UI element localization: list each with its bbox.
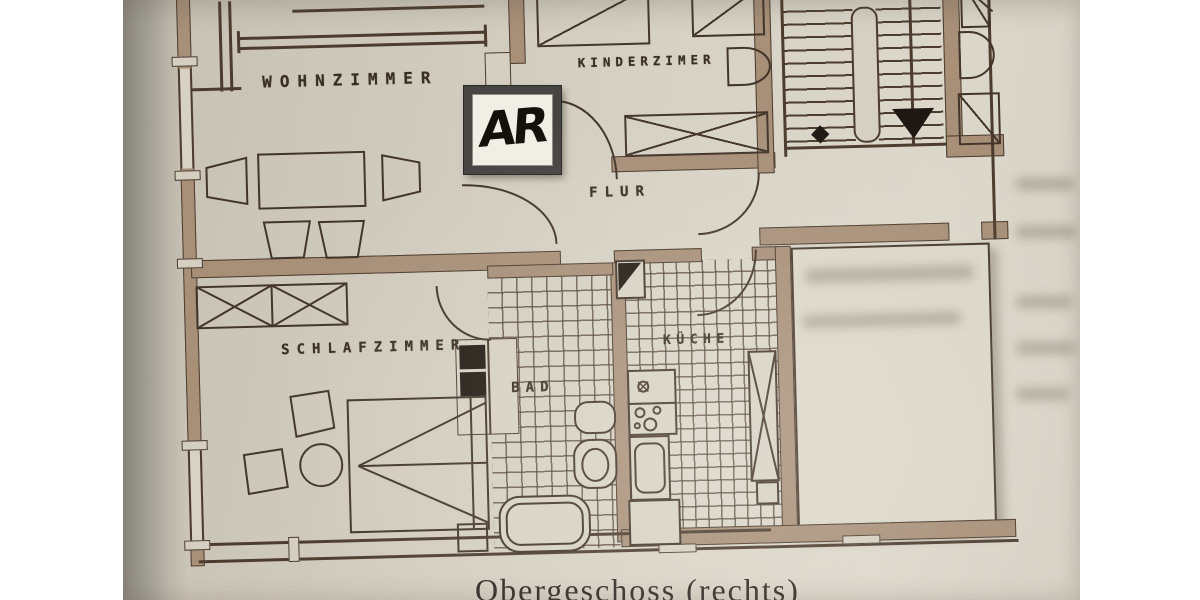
ar-annotation-label: AR bbox=[478, 101, 548, 159]
ink-bleedthrough bbox=[1016, 388, 1069, 400]
room-label-bad: BAD bbox=[511, 379, 555, 396]
schlafzimmer-chair bbox=[244, 449, 288, 494]
stove-top bbox=[628, 370, 676, 404]
corner-cut-line bbox=[966, 0, 993, 12]
wohnzimmer-chair bbox=[382, 154, 420, 200]
room-label-kueche: KÜCHE bbox=[663, 331, 730, 348]
door-arc-kinderzimmer bbox=[553, 99, 617, 181]
room-label-flur: FLUR bbox=[589, 183, 651, 201]
floorplan-photo: WOHNZIMMER KINDERZIMER FLUR SCHLAFZIMMER… bbox=[123, 0, 1080, 600]
ink-bleedthrough bbox=[1016, 296, 1072, 308]
ink-bleedthrough bbox=[1016, 342, 1075, 354]
wohnzimmer-chair bbox=[264, 221, 311, 258]
schlafzimmer-table bbox=[300, 444, 343, 487]
ink-bleedthrough bbox=[1016, 178, 1074, 190]
door-arc-schlafzimmer bbox=[437, 285, 491, 341]
kinderzimmer-chair bbox=[727, 47, 770, 85]
kueche-cupboard bbox=[629, 500, 680, 545]
door-arc-kueche bbox=[696, 250, 758, 316]
wohnzimmer-table bbox=[258, 152, 365, 209]
door-arc-entry bbox=[697, 173, 761, 235]
door-arc-wohnzimmer bbox=[462, 183, 557, 246]
ink-bleedthrough bbox=[1016, 226, 1076, 238]
schlafzimmer-chair bbox=[290, 391, 334, 437]
ar-annotation-badge: AR bbox=[464, 86, 561, 174]
screenshot: WOHNZIMMER KINDERZIMER FLUR SCHLAFZIMMER… bbox=[0, 0, 1200, 600]
ar-annotation-inner: AR bbox=[472, 94, 553, 166]
floorplan-drawing: WOHNZIMMER KINDERZIMER FLUR SCHLAFZIMMER… bbox=[123, 0, 1080, 600]
figure-caption: Obergeschoss (rechts) bbox=[475, 572, 800, 600]
stair-side-door-arc bbox=[959, 31, 994, 78]
wohnzimmer-chair bbox=[206, 158, 247, 205]
wohnzimmer-chair bbox=[319, 221, 365, 258]
toilet bbox=[575, 401, 616, 433]
shaft-black-box bbox=[460, 372, 487, 397]
